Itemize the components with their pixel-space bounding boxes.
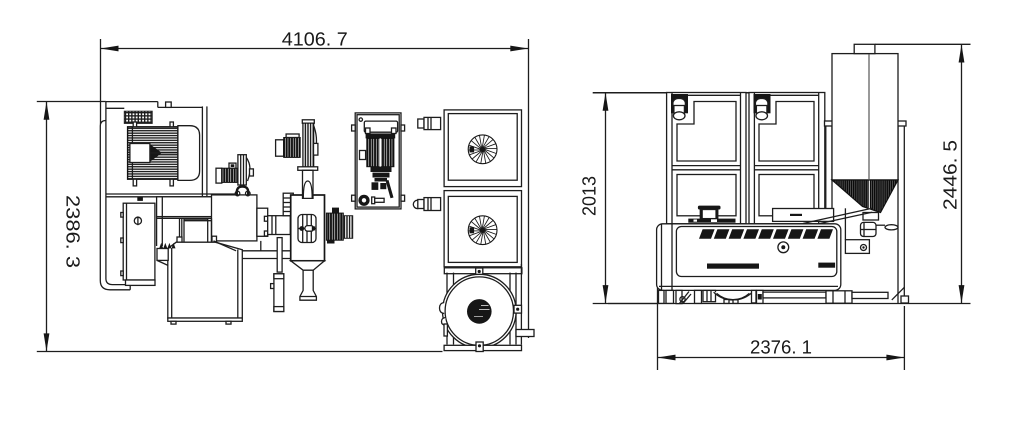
svg-text:4106. 7: 4106. 7 bbox=[282, 29, 348, 50]
svg-text:2386. 3: 2386. 3 bbox=[62, 195, 83, 268]
svg-text:2446. 5: 2446. 5 bbox=[941, 140, 962, 210]
svg-text:2013: 2013 bbox=[580, 176, 601, 216]
svg-text:2376. 1: 2376. 1 bbox=[750, 338, 812, 359]
